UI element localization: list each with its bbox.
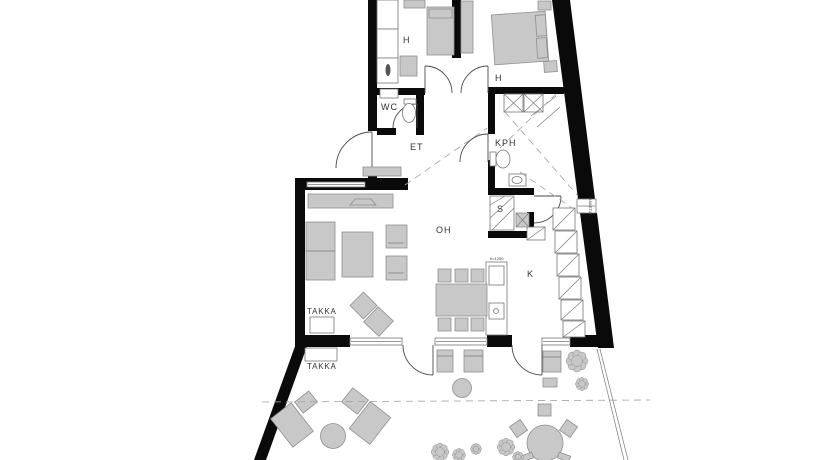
- label-fireplace-inside: TAKKA: [307, 307, 337, 316]
- kph-sink-bowl: [512, 177, 522, 184]
- kph-toilet-tank: [490, 152, 496, 166]
- terrace-lounge-a: [437, 350, 453, 372]
- wall-left-upper: [368, 0, 377, 131]
- plant-c: [436, 448, 445, 457]
- dining-chair-5: [455, 318, 468, 331]
- label-island-height: h=1200: [490, 256, 504, 261]
- plant-b: [579, 381, 586, 388]
- terrace-table-a: [453, 379, 472, 398]
- door-arc-terrace-1: [403, 345, 433, 375]
- terrace-chair-left: [509, 419, 527, 437]
- plant-f: [502, 443, 511, 452]
- room-label-bedroom-1: H: [403, 35, 411, 45]
- dining-table: [436, 284, 487, 316]
- island-cooktop: [489, 266, 504, 285]
- door-arc-bedroom-1: [425, 66, 452, 93]
- dining-chair-3: [471, 269, 484, 282]
- dashed-line-4: [262, 400, 650, 402]
- door-arc-terrace-2: [512, 345, 542, 375]
- wardrobe-bedroom-2: [461, 1, 473, 53]
- label-fireplace-terrace: TAKKA: [307, 362, 337, 371]
- terrace-side-table: [543, 378, 557, 387]
- pillow-bedroom-2-b: [536, 38, 547, 59]
- wall-kph-left-upper: [488, 87, 495, 134]
- wall-right-upper: [552, 0, 595, 199]
- doormat-entry: [363, 167, 401, 176]
- terrace-chair-br: [557, 452, 570, 460]
- terrace-table-b: [321, 424, 346, 449]
- door-arc-front: [336, 132, 372, 168]
- plant-d: [456, 452, 463, 459]
- floor-plan: HHWCETKPHSOHKTAKKATAKKAh=1200TUULETUS: [0, 0, 840, 460]
- plant-g: [515, 454, 521, 460]
- room-label-bedroom-2: H: [495, 73, 503, 83]
- wall-bottom-2: [487, 335, 512, 347]
- dining-chair-2: [455, 269, 468, 282]
- pillow-bedroom-1: [429, 9, 452, 18]
- pillow-bedroom-2-a: [535, 15, 546, 37]
- detail-line-24: [600, 349, 628, 460]
- wall-living-left: [295, 178, 305, 347]
- door-arc-bedroom-2: [461, 66, 488, 93]
- room-label-sauna: S: [497, 204, 504, 214]
- dining-chair-1: [438, 269, 451, 282]
- terrace-chair-top: [538, 404, 551, 416]
- side-table-bedroom-1: [400, 56, 417, 76]
- armchair-a: [386, 225, 407, 248]
- tv-sideboard: [308, 194, 393, 208]
- plant-marker-bedroom-1: [386, 64, 391, 76]
- room-label-kitchen: K: [527, 269, 534, 279]
- label-vent-window: TUULETUS: [588, 197, 592, 216]
- room-label-wc: WC: [381, 102, 398, 112]
- wardrobe-bedroom-1-b: [377, 29, 398, 58]
- plant-a: [572, 356, 583, 367]
- door-arc-bathroom: [460, 134, 488, 162]
- desk-bedroom-1: [404, 0, 425, 8]
- dining-chair-4: [438, 318, 451, 331]
- room-label-bathroom: KPH: [495, 138, 517, 148]
- wardrobe-bedroom-1-a: [377, 0, 398, 29]
- terrace-lounge-b: [464, 350, 483, 372]
- terrace-lounge-c: [543, 351, 561, 372]
- wall-bedroom2-bottom: [488, 87, 564, 94]
- island-faucet: [494, 309, 499, 314]
- room-label-living-room: OH: [436, 225, 452, 235]
- nightstand-bedroom-2-a: [538, 1, 551, 10]
- fireplace-inside: [310, 317, 334, 333]
- wall-kph-sauna-divider: [488, 188, 534, 195]
- nightstand-bedroom-2-b: [544, 61, 558, 73]
- detail-line-25: [597, 349, 624, 460]
- terrace-chair-right: [559, 419, 577, 437]
- wc-toilet: [403, 104, 416, 123]
- tv: [350, 199, 376, 205]
- dashed-line-0: [405, 128, 487, 185]
- room-label-entry: ET: [410, 142, 424, 152]
- rug-table: [342, 232, 373, 277]
- wall-wc-bottom-stub: [377, 128, 396, 135]
- wc-sink: [380, 89, 398, 98]
- fireplace-terrace: [305, 348, 337, 361]
- plant-e: [473, 446, 479, 452]
- floor-plan-canvas: HHWCETKPHSOHKTAKKATAKKAh=1200TUULETUS: [0, 0, 840, 460]
- dining-chair-6: [471, 318, 484, 331]
- armchair-b: [386, 256, 407, 280]
- kph-toilet: [496, 150, 510, 168]
